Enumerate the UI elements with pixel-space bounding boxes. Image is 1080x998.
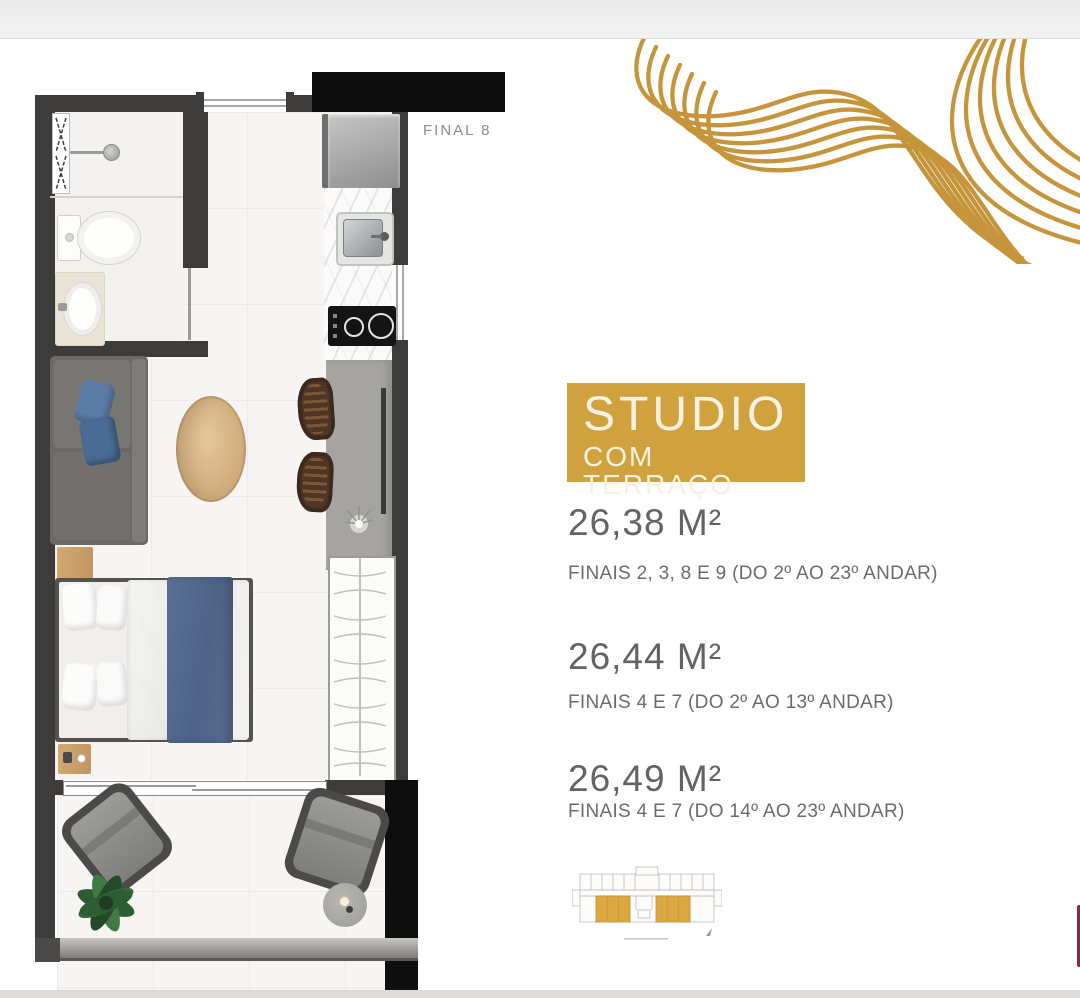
variant-area: 26,44 M² <box>568 636 722 678</box>
bed-pillow <box>96 585 129 631</box>
toilet-flush-button <box>65 233 74 242</box>
bathroom-sink <box>63 282 102 336</box>
unit-type-badge: STUDIO COM TERRAÇO <box>567 383 805 482</box>
sofa-armrest <box>132 359 146 542</box>
bed <box>55 578 253 742</box>
unit-label: FINAL 8 <box>423 122 491 139</box>
variant-area: 26,38 M² <box>568 502 722 544</box>
toilet-bowl <box>77 211 141 265</box>
bathroom-sliding-door <box>188 268 191 340</box>
brochure-page: FINAL 8 <box>0 0 1080 998</box>
table-item <box>346 906 353 913</box>
terrace-railing <box>35 938 418 961</box>
window-line <box>396 265 398 340</box>
bed-blanket <box>167 577 233 743</box>
nightstand <box>57 547 93 581</box>
sofa <box>50 356 148 545</box>
nightstand <box>58 744 91 774</box>
wave-lines <box>636 36 1080 264</box>
variant-floors: FINAIS 4 E 7 (DO 14º AO 23º ANDAR) <box>568 801 905 823</box>
terrace-column <box>385 780 418 998</box>
chair-slats <box>302 383 329 435</box>
top-bar <box>0 0 1080 39</box>
coffee-table <box>176 396 246 502</box>
shower-head <box>103 144 120 161</box>
terrace-railing-cap <box>35 938 60 962</box>
window-line <box>200 99 290 101</box>
bed-pillow <box>96 661 129 707</box>
bottom-bar <box>0 990 1080 998</box>
window-line <box>402 265 404 340</box>
gold-waves-decoration <box>630 36 1080 264</box>
chair-slats <box>302 457 328 506</box>
kitchen-sink-basin <box>343 219 383 257</box>
nightstand-decor <box>77 754 86 763</box>
sink-faucet <box>58 303 67 311</box>
sofa-pillow <box>78 415 121 467</box>
wall-bathroom-right <box>183 112 208 268</box>
wall-top-stub <box>290 95 312 112</box>
shower-door <box>52 113 70 194</box>
bar-shelf-edge <box>381 388 386 514</box>
burner <box>368 313 394 339</box>
bed-pillow <box>61 662 100 711</box>
keyplan-caption-marks <box>624 928 712 940</box>
variant-area: 26,49 M² <box>568 758 722 800</box>
dining-chair <box>295 451 334 513</box>
variant-floors: FINAIS 2, 3, 8 E 9 (DO 2º AO 23º ANDAR) <box>568 563 938 585</box>
window-jamb <box>196 92 204 112</box>
corridor-mass <box>312 72 505 112</box>
wall-top <box>35 95 200 112</box>
burner <box>344 317 364 337</box>
window-top <box>200 95 290 112</box>
wall-terrace-left-stub <box>35 780 63 795</box>
window-line <box>200 105 290 107</box>
variant-floors: FINAIS 4 E 7 (DO 2º AO 13º ANDAR) <box>568 692 894 714</box>
shower-partition <box>50 196 183 198</box>
refrigerator <box>322 114 400 188</box>
wardrobe-hangers <box>330 558 390 776</box>
terrace-side-table <box>323 883 367 927</box>
wardrobe <box>328 556 396 782</box>
key-plan <box>572 862 722 962</box>
kitchen-sink <box>336 212 394 266</box>
badge-title: STUDIO <box>583 391 788 439</box>
nightstand-decor <box>63 752 72 763</box>
shower-door-glyph <box>53 114 69 193</box>
bed-pillow <box>61 583 99 632</box>
cooktop-knobs <box>333 314 337 338</box>
door-rail <box>66 785 196 787</box>
kitchen-faucet-spout <box>371 235 383 238</box>
counter-plant <box>344 504 374 538</box>
floor-plan: FINAL 8 <box>35 70 505 970</box>
badge-subtitle: COM TERRAÇO <box>583 443 805 499</box>
door-rail <box>192 789 322 791</box>
cooktop <box>328 306 396 346</box>
